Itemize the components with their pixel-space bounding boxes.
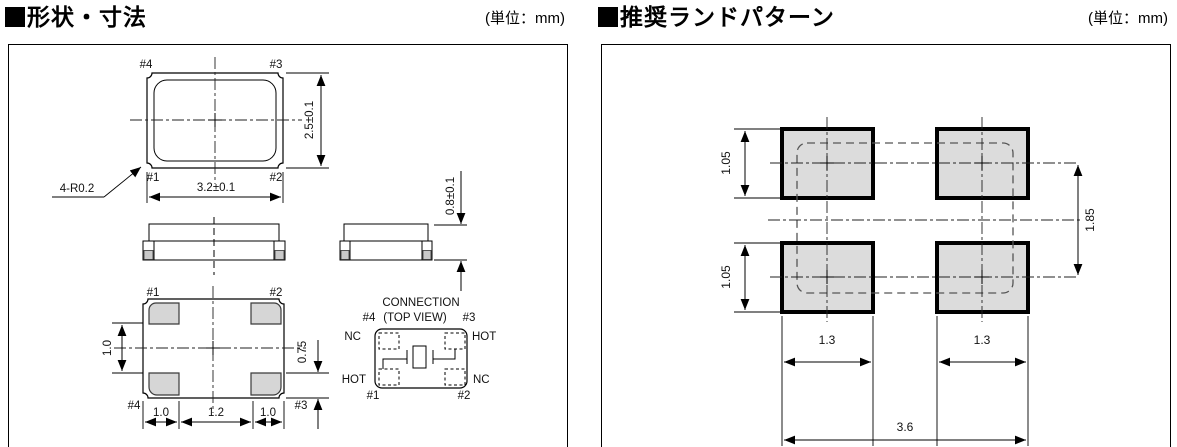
connection-pad-bottom-right (445, 369, 465, 385)
crystal-plates (407, 350, 433, 364)
extension-lines (734, 243, 781, 312)
bottom-right-dimension: 1.0 (260, 407, 276, 419)
pin-label: #1 (147, 287, 160, 299)
pin-label: #2 (270, 172, 283, 184)
front-terminal-right-metal (275, 251, 284, 260)
section-marker-square (598, 7, 618, 27)
package-bottom-view: #1 #2 #4 #3 1.0 0.75 1.0 1.2 1.0 (102, 286, 329, 429)
land-pattern-drawing: 1.05 1.05 1.85 1.3 1.3 3.6 (602, 45, 1169, 446)
corner-radius-arrow (104, 167, 141, 197)
left-title-text: 形状・寸法 (27, 2, 147, 32)
shape-dimensions-drawing: #4 #3 #1 #2 2.5±0.1 3.2±0.1 4-R0.2 0.8±0… (9, 45, 567, 446)
pin-label: #4 (363, 312, 376, 324)
side-terminal-left-metal (341, 251, 349, 260)
land-pattern-panel: 1.05 1.05 1.85 1.3 1.3 3.6 (601, 44, 1171, 447)
bottom-left-dimension: 1.0 (153, 407, 169, 419)
net-label: HOT (472, 331, 496, 343)
center-cross (208, 113, 222, 127)
package-side-views: 0.8±0.1 (143, 171, 467, 291)
pin-label: #3 (295, 400, 308, 412)
net-label: NC (473, 374, 490, 386)
net-label: NC (344, 331, 361, 343)
connection-title: CONNECTION (382, 297, 459, 309)
shape-dimensions-panel: #4 #3 #1 #2 2.5±0.1 3.2±0.1 4-R0.2 0.8±0… (8, 44, 568, 447)
pad-bottom-left (149, 373, 179, 395)
pin-label: #2 (458, 390, 471, 402)
connection-subtitle: (TOP VIEW) (383, 312, 447, 324)
extension-lines (434, 225, 467, 260)
side-terminal-right-metal (423, 251, 431, 260)
connection-pad-top-left (379, 333, 399, 349)
overall-width-dimension: 3.6 (897, 420, 914, 434)
crystal-symbol (413, 346, 426, 368)
pad-height-bottom-dimension: 1.05 (719, 265, 733, 289)
connection-pad-bottom-left (379, 369, 399, 385)
connection-diagram: CONNECTION (TOP VIEW) #4 #3 NC HOT HOT N… (342, 297, 497, 402)
left-section-title: 形状・寸法 (5, 2, 147, 32)
pad-top-right (251, 303, 281, 324)
bottom-center-dimension: 1.2 (208, 407, 224, 419)
extension-lines (734, 129, 781, 198)
package-top-view: #4 #3 #1 #2 2.5±0.1 3.2±0.1 4-R0.2 (52, 57, 329, 203)
right-section-title: 推奨ランドパターン (598, 2, 835, 32)
section-marker-square (5, 7, 25, 27)
crystal-wires (383, 349, 455, 369)
pin-label: #1 (147, 172, 160, 184)
side-base (340, 241, 432, 260)
right-unit-label: (単位：mm) (1088, 6, 1168, 32)
extension-lines (286, 373, 329, 398)
right-title-text: 推奨ランドパターン (620, 2, 835, 32)
pad-width-right-dimension: 1.3 (974, 333, 991, 347)
center-cross (206, 341, 220, 355)
pin-label: #4 (128, 400, 141, 412)
pad-height-dimension: 0.75 (297, 341, 309, 363)
right-section-header: 推奨ランドパターン (単位：mm) (598, 2, 1168, 32)
row-pitch-dimension: 1.85 (1083, 208, 1097, 232)
height-dimension: 2.5±0.1 (304, 101, 316, 139)
corner-radius-note: 4-R0.2 (60, 183, 95, 195)
front-terminal-left-metal (144, 251, 153, 260)
net-label: HOT (342, 374, 366, 386)
left-unit-label: (単位：mm) (485, 6, 565, 32)
width-dimension: 3.2±0.1 (197, 182, 235, 194)
pad-top-left (149, 303, 179, 324)
pin-label: #2 (270, 287, 283, 299)
side-lid (344, 224, 428, 241)
pin-label: #3 (463, 312, 476, 324)
connection-pad-top-right (445, 333, 465, 349)
left-section-header: 形状・寸法 (単位：mm) (5, 2, 565, 32)
pad-height-top-dimension: 1.05 (719, 151, 733, 175)
pad-bottom-right (251, 373, 281, 395)
land-pattern: 1.05 1.05 1.85 1.3 1.3 3.6 (719, 117, 1097, 446)
pad-width-left-dimension: 1.3 (819, 333, 836, 347)
pin-label: #3 (270, 59, 283, 71)
pad-gap-dimension: 1.0 (102, 340, 114, 356)
thickness-dimension: 0.8±0.1 (445, 177, 457, 215)
pin-label: #1 (367, 390, 380, 402)
pin-label: #4 (140, 59, 153, 71)
